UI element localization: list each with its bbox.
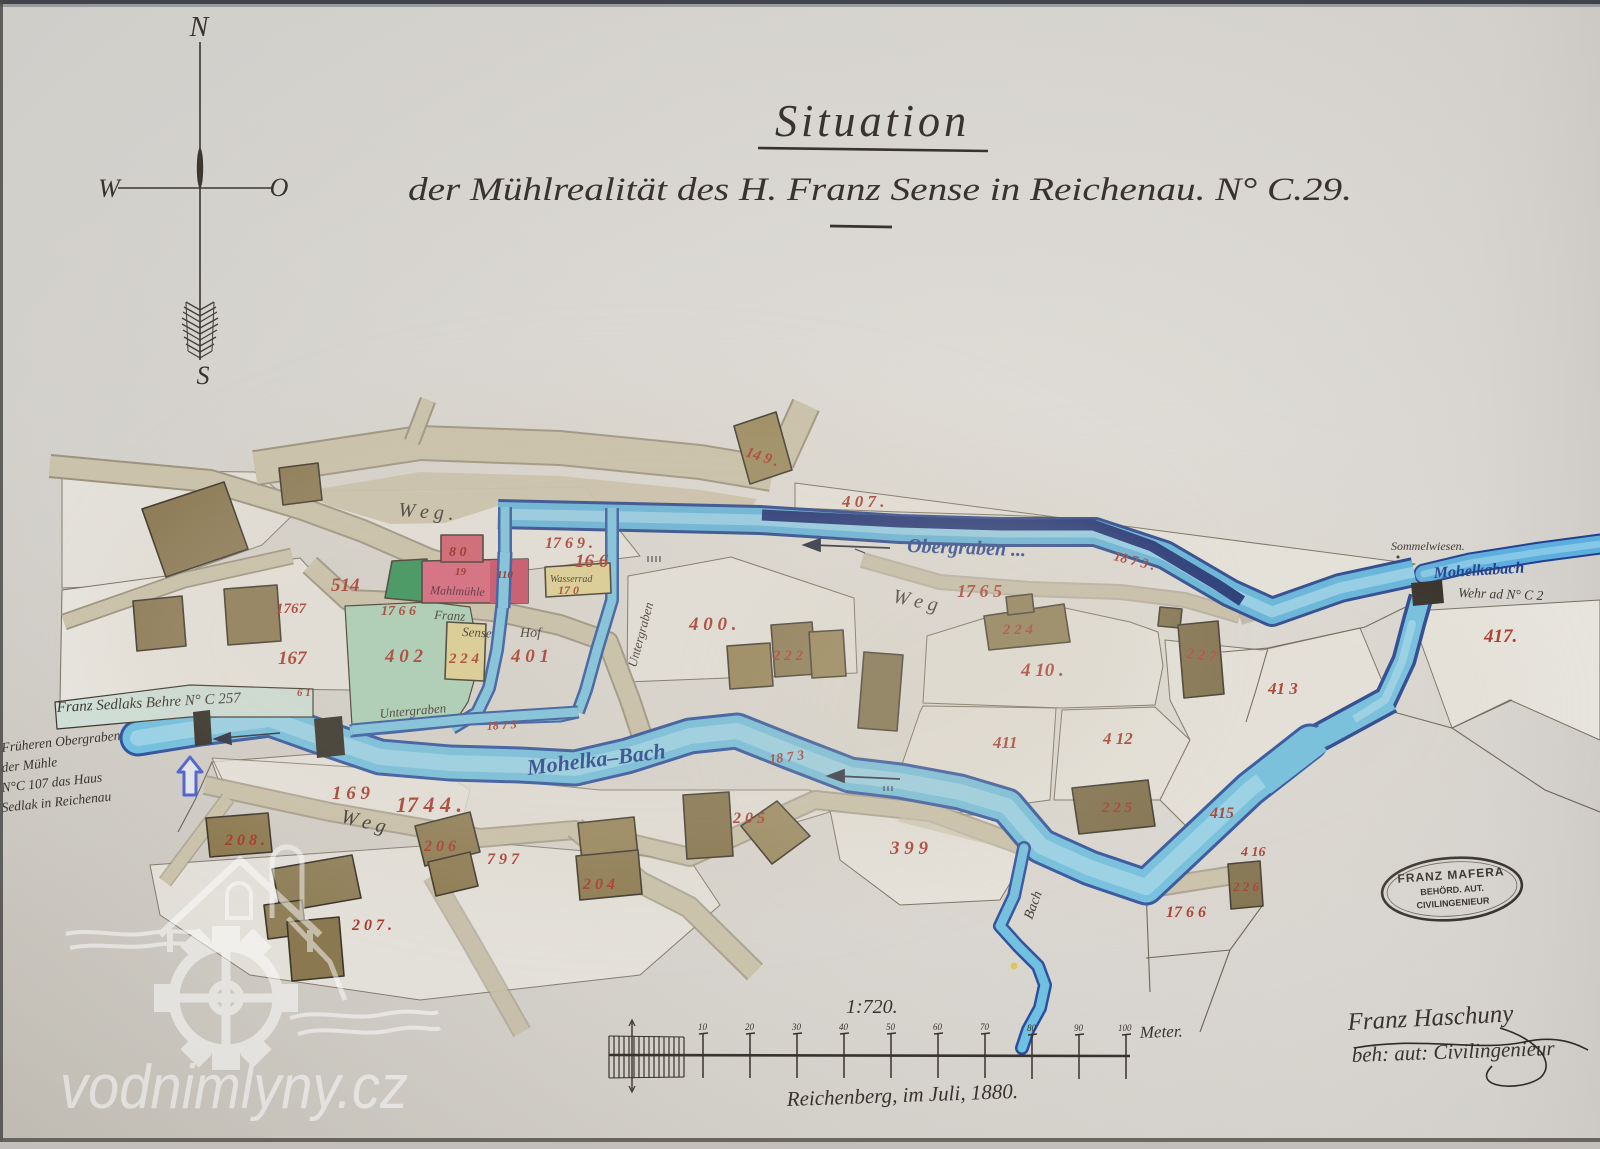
svg-text:60: 60: [933, 1022, 943, 1032]
svg-text:Meter.: Meter.: [1138, 1022, 1183, 1043]
svg-text:2 0 8 .: 2 0 8 .: [224, 832, 265, 849]
svg-text:2 0 7 .: 2 0 7 .: [351, 917, 392, 934]
svg-text:20: 20: [745, 1022, 755, 1032]
svg-text:80: 80: [1027, 1023, 1037, 1033]
svg-text:70: 70: [980, 1022, 990, 1032]
svg-text:1:720.: 1:720.: [846, 996, 898, 1018]
svg-text:100: 100: [1118, 1023, 1132, 1033]
svg-text:90: 90: [1074, 1023, 1084, 1033]
svg-text:N: N: [189, 12, 210, 43]
svg-text:50: 50: [886, 1022, 896, 1032]
svg-text:W: W: [98, 174, 122, 203]
svg-text:Situation: Situation: [775, 95, 970, 146]
svg-text:O: O: [270, 173, 289, 202]
svg-text:vodnimlyny.cz: vodnimlyny.cz: [60, 1053, 408, 1122]
svg-text:der Mühlrealität des H. Franz: der Mühlrealität des H. Franz Sense in R…: [408, 172, 1352, 208]
svg-text:30: 30: [791, 1022, 802, 1032]
svg-text:S: S: [197, 361, 210, 390]
svg-text:10: 10: [698, 1022, 708, 1032]
svg-text:40: 40: [839, 1022, 849, 1032]
